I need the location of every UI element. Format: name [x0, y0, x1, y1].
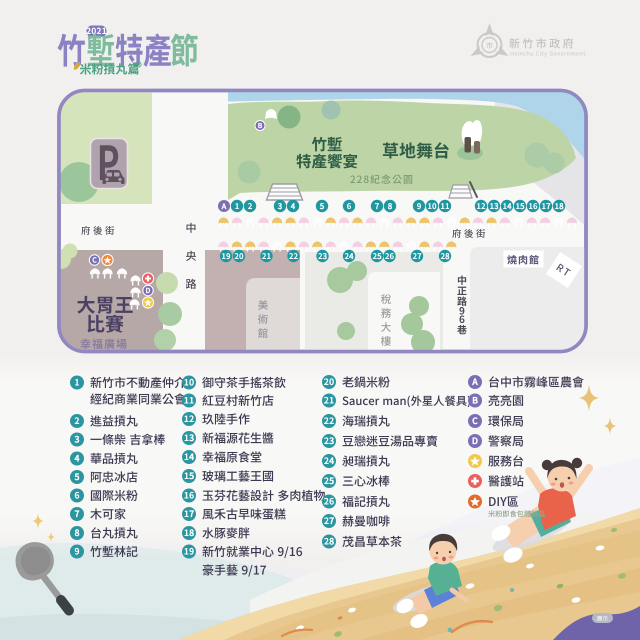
svg-text:15: 15 [515, 201, 525, 212]
svg-text:27: 27 [324, 514, 334, 527]
svg-text:豪手藝 9/17: 豪手藝 9/17 [202, 562, 267, 579]
svg-text:A: A [471, 375, 478, 388]
svg-text:2: 2 [248, 201, 253, 212]
svg-text:9: 9 [417, 201, 422, 212]
svg-text:一條柴 吉拿棒: 一條柴 吉拿棒 [90, 431, 165, 448]
svg-text:14: 14 [184, 450, 194, 463]
svg-text:風禾古早味蛋糕: 風禾古早味蛋糕 [202, 505, 286, 522]
svg-text:府後街: 府後街 [81, 223, 117, 237]
svg-text:央: 央 [186, 248, 197, 264]
svg-text:4: 4 [73, 452, 79, 465]
svg-text:228紀念公園: 228紀念公園 [350, 171, 414, 186]
svg-text:13: 13 [184, 431, 194, 444]
svg-text:19: 19 [221, 251, 231, 262]
svg-text:R: R [137, 62, 140, 68]
svg-text:6: 6 [347, 201, 352, 212]
svg-text:木可家: 木可家 [90, 505, 126, 522]
svg-text:21: 21 [324, 394, 334, 407]
svg-text:服務台: 服務台 [488, 452, 524, 469]
svg-text:醫護站: 醫護站 [488, 472, 524, 489]
svg-text:幸福廣場: 幸福廣場 [80, 336, 128, 352]
svg-text:米粉摃丸篇: 米粉摃丸篇 [80, 61, 140, 78]
svg-text:13: 13 [489, 201, 499, 212]
svg-text:21: 21 [262, 251, 272, 262]
svg-text:術: 術 [258, 312, 269, 327]
svg-text:巷: 巷 [457, 322, 467, 337]
svg-text:樓: 樓 [381, 334, 392, 349]
svg-text:24: 24 [324, 454, 334, 467]
svg-text:美: 美 [258, 298, 269, 313]
svg-text:國際米粉: 國際米粉 [90, 487, 138, 504]
svg-text:12: 12 [476, 201, 486, 212]
svg-text:進益摃丸: 進益摃丸 [90, 412, 138, 429]
svg-text:3: 3 [277, 201, 283, 212]
svg-text:3: 3 [73, 433, 79, 446]
svg-text:22: 22 [289, 251, 299, 262]
svg-text:18: 18 [554, 201, 564, 212]
svg-text:亮亮園: 亮亮園 [488, 392, 524, 409]
svg-text:比賽: 比賽 [86, 310, 124, 337]
svg-text:幸福原食堂: 幸福原食堂 [202, 448, 262, 465]
svg-text:A: A [221, 201, 227, 212]
svg-text:水豚麥胖: 水豚麥胖 [202, 524, 250, 541]
svg-text:赫曼咖啡: 赫曼咖啡 [342, 512, 390, 529]
svg-text:節: 節 [170, 24, 199, 74]
svg-text:26: 26 [385, 251, 395, 262]
svg-text:28: 28 [440, 251, 450, 262]
svg-text:玖陸手作: 玖陸手作 [202, 410, 250, 427]
svg-text:1: 1 [235, 201, 240, 212]
svg-text:原示: 原示 [597, 614, 609, 622]
svg-text:20: 20 [324, 375, 334, 388]
svg-text:竹塹林記: 竹塹林記 [90, 543, 138, 560]
svg-text:8: 8 [388, 201, 393, 212]
svg-text:5: 5 [319, 201, 325, 212]
svg-text:20: 20 [234, 251, 244, 262]
svg-text:B: B [258, 120, 263, 130]
svg-text:茂昌草本茶: 茂昌草本茶 [342, 533, 402, 550]
svg-text:Hsinchu City Government: Hsinchu City Government [510, 50, 586, 58]
svg-text:特產饗宴: 特產饗宴 [296, 150, 358, 172]
svg-text:17: 17 [184, 507, 194, 520]
svg-text:10: 10 [184, 376, 194, 389]
svg-text:B: B [472, 394, 478, 407]
svg-text:福記摃丸: 福記摃丸 [342, 493, 390, 510]
svg-text:16: 16 [184, 489, 194, 502]
svg-text:D: D [472, 434, 478, 447]
svg-text:府後街: 府後街 [452, 226, 488, 240]
svg-text:新竹就業中心 9/16: 新竹就業中心 9/16 [202, 543, 303, 560]
svg-text:25: 25 [324, 474, 334, 487]
svg-text:7: 7 [375, 201, 380, 212]
svg-text:24: 24 [344, 251, 354, 262]
svg-text:15: 15 [184, 469, 194, 482]
svg-text:19: 19 [184, 545, 194, 558]
svg-text:P: P [97, 125, 120, 194]
svg-text:市: 市 [486, 41, 493, 51]
svg-text:D: D [146, 286, 151, 296]
svg-text:大: 大 [381, 320, 392, 335]
svg-text:C: C [92, 256, 97, 266]
svg-text:5: 5 [73, 470, 79, 483]
svg-text:12: 12 [184, 412, 194, 425]
svg-text:米粉即食包體驗區: 米粉即食包體驗區 [488, 510, 546, 520]
svg-text:老鍋米粉: 老鍋米粉 [342, 373, 390, 390]
svg-text:Saucer man(外星人餐具): Saucer man(外星人餐具) [342, 393, 471, 409]
svg-text:18: 18 [184, 526, 194, 539]
svg-text:9: 9 [74, 545, 79, 558]
svg-text:23: 23 [318, 251, 328, 262]
svg-text:台中市霧峰區農會: 台中市霧峰區農會 [488, 373, 584, 390]
svg-text:玻璃工藝王國: 玻璃工藝王國 [202, 467, 274, 484]
svg-text:2: 2 [74, 414, 79, 427]
svg-text:14: 14 [502, 201, 512, 212]
svg-text:C: C [472, 414, 478, 427]
svg-text:玉芬花藝設計 多肉植物: 玉芬花藝設計 多肉植物 [202, 487, 325, 504]
svg-text:紅豆村新竹店: 紅豆村新竹店 [202, 392, 274, 409]
svg-text:新福源花生醬: 新福源花生醬 [202, 429, 274, 446]
svg-text:11: 11 [440, 201, 450, 212]
svg-text:燒肉館: 燒肉館 [507, 252, 540, 267]
svg-text:10: 10 [427, 201, 437, 212]
svg-text:御守茶手搖茶飲: 御守茶手搖茶飲 [202, 374, 286, 391]
svg-text:經紀商業同業公會: 經紀商業同業公會 [90, 391, 186, 408]
svg-text:25: 25 [372, 251, 382, 262]
svg-text:17: 17 [541, 201, 551, 212]
svg-text:22: 22 [324, 414, 334, 427]
svg-text:三心冰棒: 三心冰棒 [342, 472, 390, 489]
svg-text:稅: 稅 [381, 292, 392, 307]
svg-text:23: 23 [324, 434, 334, 447]
svg-text:11: 11 [184, 394, 194, 407]
svg-text:產: 產 [143, 24, 172, 74]
svg-text:1: 1 [74, 376, 79, 389]
svg-text:27: 27 [412, 251, 422, 262]
svg-text:豆戀迷豆湯品專賣: 豆戀迷豆湯品專賣 [342, 432, 438, 449]
svg-text:海瑞摃丸: 海瑞摃丸 [342, 412, 390, 429]
svg-text:華品摃丸: 華品摃丸 [90, 450, 138, 467]
svg-text:7: 7 [74, 507, 79, 520]
svg-text:26: 26 [324, 495, 334, 508]
svg-text:昶瑞摃丸: 昶瑞摃丸 [342, 452, 390, 469]
svg-text:16: 16 [528, 201, 538, 212]
svg-text:6: 6 [74, 489, 79, 502]
svg-text:28: 28 [324, 535, 334, 548]
svg-text:中: 中 [186, 220, 197, 236]
svg-text:路: 路 [186, 276, 197, 292]
svg-text:環保局: 環保局 [488, 412, 524, 429]
svg-text:警察局: 警察局 [488, 432, 524, 449]
svg-text:務: 務 [381, 306, 392, 321]
svg-text:新竹市不動產仲介: 新竹市不動產仲介 [90, 374, 186, 391]
svg-text:台丸摃丸: 台丸摃丸 [90, 524, 138, 541]
svg-text:4: 4 [290, 201, 296, 212]
svg-text:阿忠冰店: 阿忠冰店 [90, 468, 138, 485]
svg-text:8: 8 [74, 526, 79, 539]
svg-text:DIY區: DIY區 [488, 493, 519, 510]
svg-text:草地舞台: 草地舞台 [382, 137, 450, 162]
svg-text:館: 館 [258, 326, 269, 341]
